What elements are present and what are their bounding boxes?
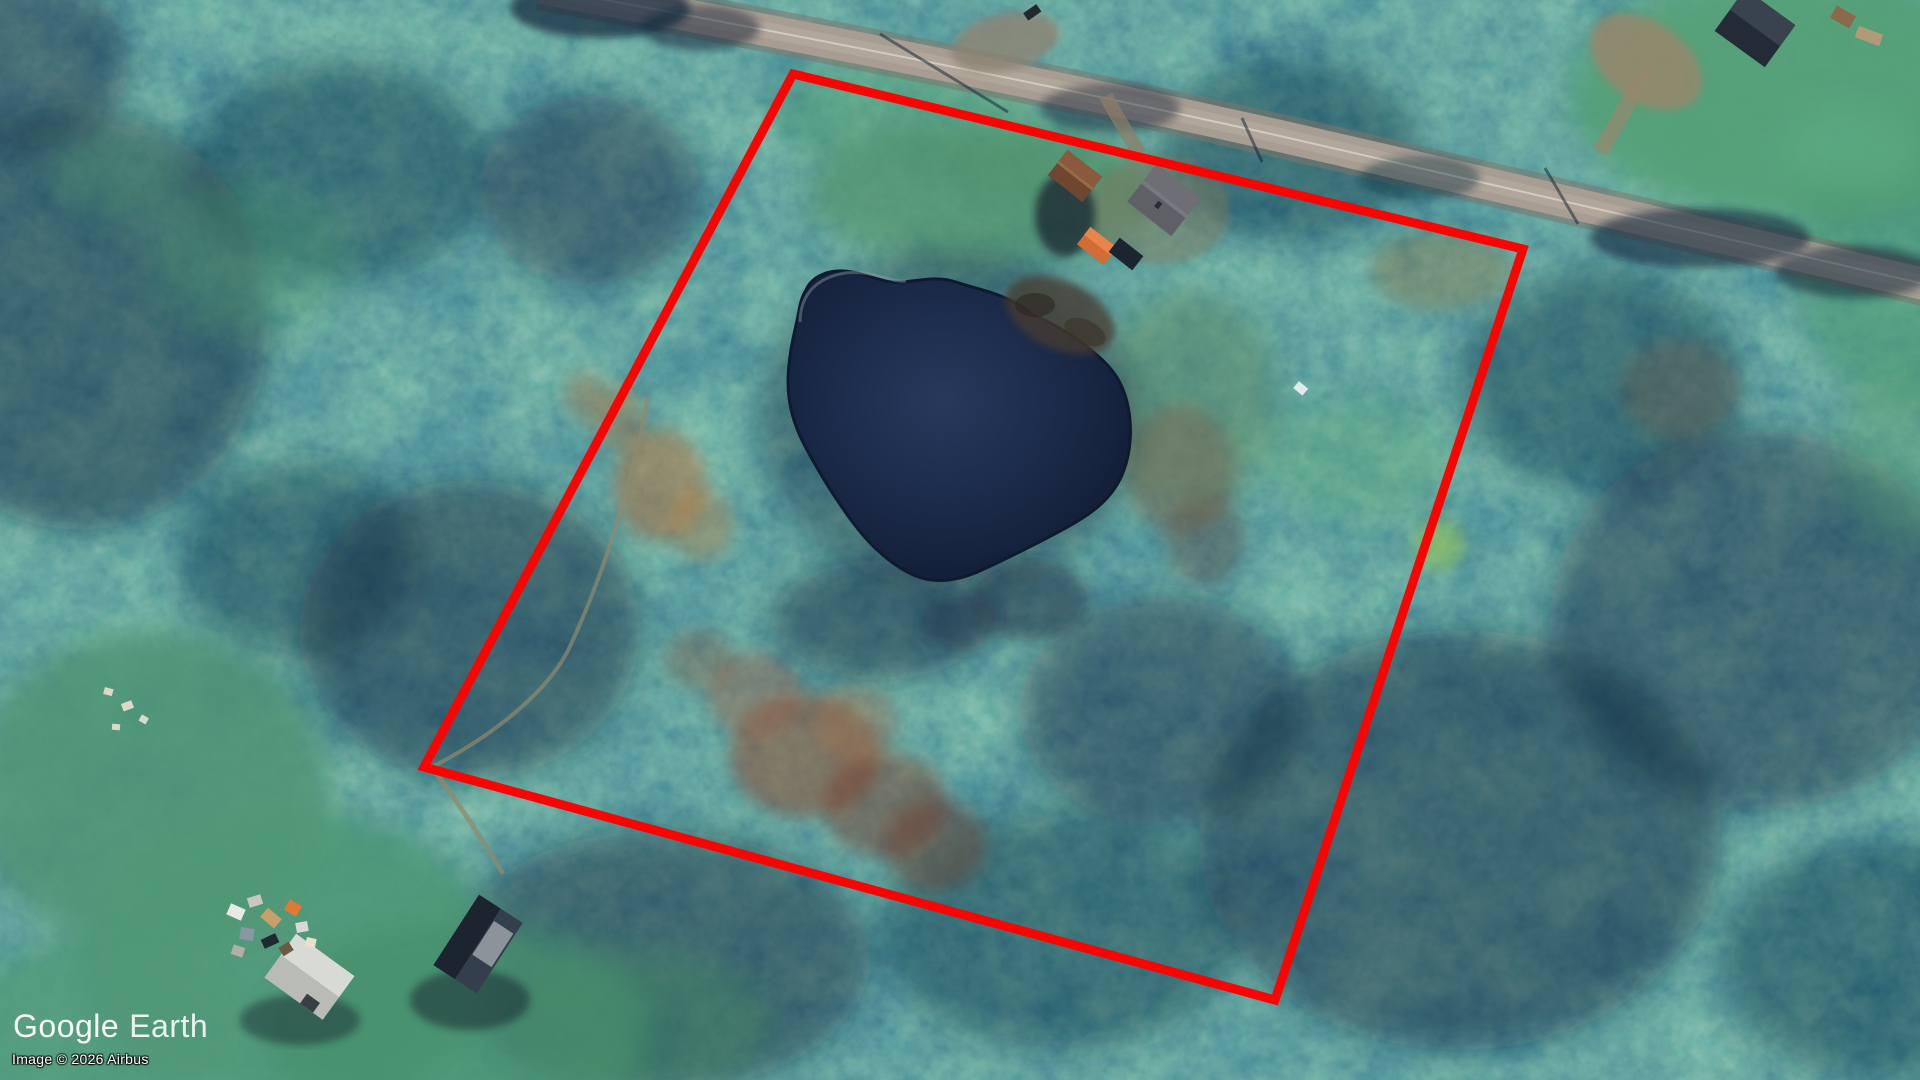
attribution-text: Image © 2026 Airbus (12, 1051, 149, 1067)
google-earth-logo-earth: Earth (129, 1008, 208, 1044)
google-earth-logo-google: Google (13, 1008, 119, 1044)
google-earth-viewport[interactable]: GoogleEarth Image © 2026 Airbus (0, 0, 1920, 1080)
google-earth-logo: GoogleEarth (13, 1008, 208, 1045)
satellite-imagery (0, 0, 1920, 1080)
